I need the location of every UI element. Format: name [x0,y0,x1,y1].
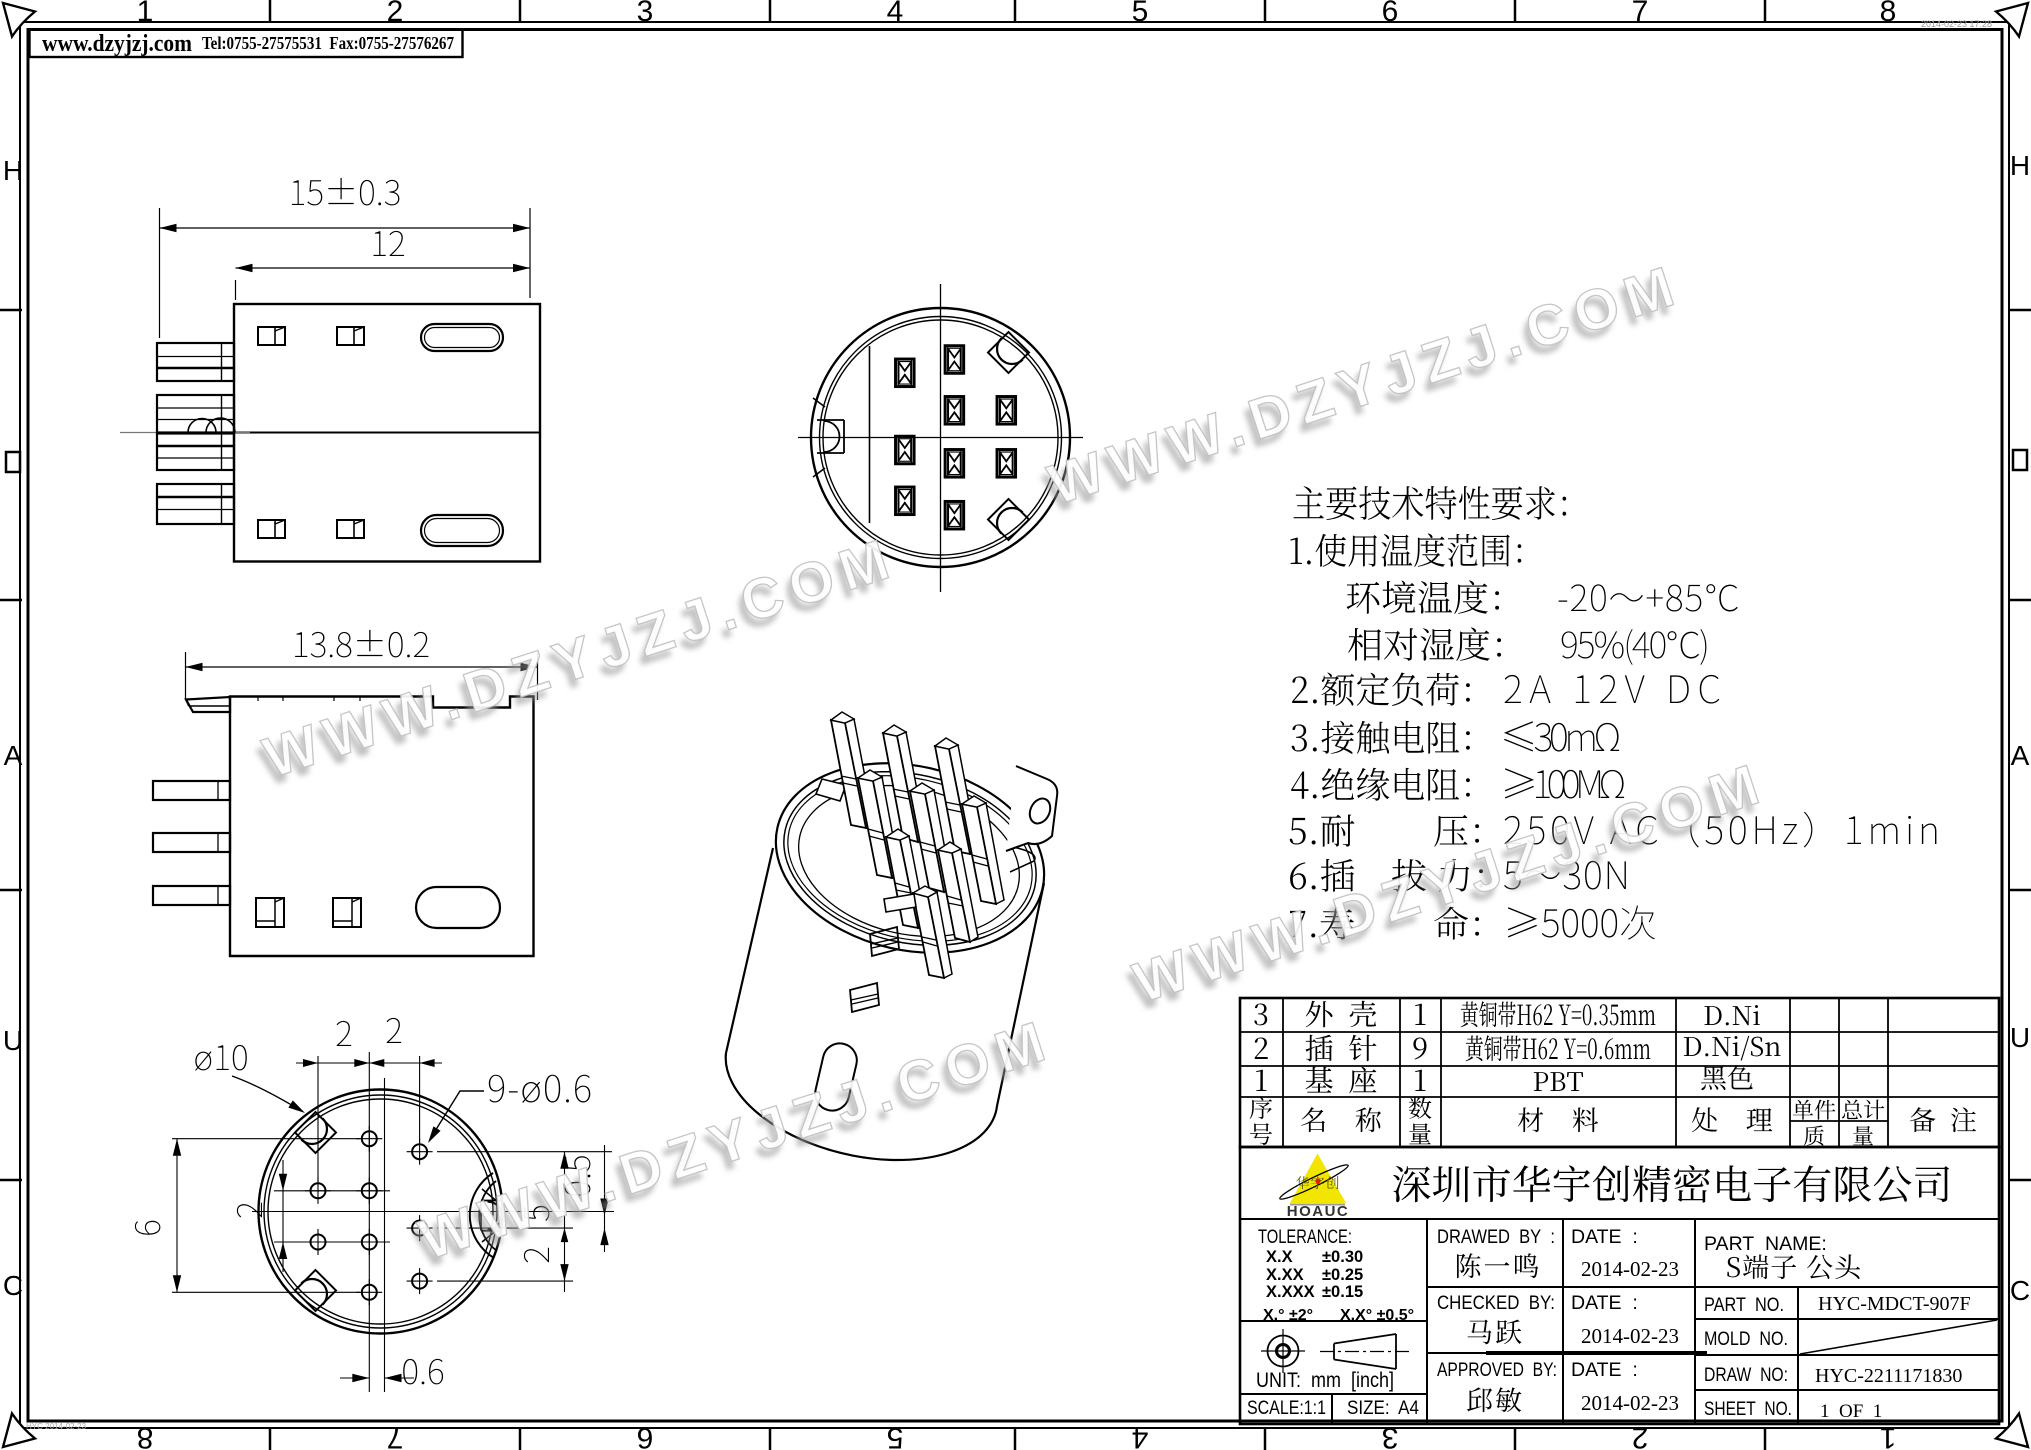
svg-text:APPROVED BY:: APPROVED BY: [1437,1359,1557,1381]
svg-text:HYC 2014-02-23: HYC 2014-02-23 [26,1422,87,1431]
svg-text:HOAUC: HOAUC [1287,1203,1350,1220]
svg-text:2: 2 [1632,1421,1649,1450]
svg-text:5: 5 [1132,0,1149,28]
svg-text:MOLD NO.: MOLD NO. [1704,1328,1788,1350]
svg-text:X.XXX: X.XXX [1266,1283,1315,1301]
svg-text:4: 4 [1132,1421,1149,1450]
svg-text:1: 1 [1880,1421,1897,1450]
svg-text:X.XX: X.XX [1266,1266,1304,1284]
svg-text:5: 5 [887,1421,904,1450]
svg-text:SCALE:1:1: SCALE:1:1 [1247,1398,1326,1419]
svg-text:6: 6 [637,1421,654,1450]
svg-text:8: 8 [137,1421,154,1450]
svg-text:TOLERANCE:: TOLERANCE: [1258,1227,1352,1248]
svg-text:H: H [2010,150,2030,181]
svg-text:U: U [2010,1022,2030,1053]
svg-text:3: 3 [1382,1421,1399,1450]
svg-text:±0.30: ±0.30 [1322,1248,1363,1266]
svg-text:U: U [3,1025,23,1056]
svg-text:Tel:0755-27575531 Fax:0755-27: Tel:0755-27575531 Fax:0755-27576267 [202,33,454,53]
svg-text:HYC-2211171830: HYC-2211171830 [1815,1365,1962,1387]
svg-text:www.dzyjzj.com: www.dzyjzj.com [42,31,192,57]
svg-text:2014-02-23 17:28: 2014-02-23 17:28 [1921,19,1992,29]
svg-text:4: 4 [887,0,904,28]
svg-text:7: 7 [1632,0,1649,28]
svg-text:2014-02-23: 2014-02-23 [1581,1324,1679,1348]
svg-text:8: 8 [1880,0,1897,28]
svg-text:7: 7 [387,1421,404,1450]
svg-text:1: 1 [137,0,154,28]
svg-text:DATE :: DATE : [1571,1359,1638,1381]
svg-text:A: A [2011,740,2030,771]
svg-text:6: 6 [1382,0,1399,28]
svg-text:1 OF 1: 1 OF 1 [1820,1401,1882,1422]
svg-text:X.X: X.X [1266,1248,1293,1266]
svg-text:SHEET NO.: SHEET NO. [1704,1398,1792,1420]
svg-text:2014-02-23: 2014-02-23 [1581,1257,1679,1281]
svg-text:UNIT: mm [inch]: UNIT: mm [inch] [1256,1369,1394,1392]
svg-text:2014-02-23: 2014-02-23 [1581,1391,1679,1415]
svg-text:X.° ±2°: X.° ±2° [1263,1307,1313,1324]
svg-text:C: C [2010,1275,2030,1306]
svg-text:H: H [3,155,23,186]
svg-text:DRAWED BY :: DRAWED BY : [1437,1226,1555,1248]
svg-text:PART NAME:: PART NAME: [1704,1233,1827,1255]
svg-text:HYC-MDCT-907F: HYC-MDCT-907F [1818,1293,1971,1315]
svg-text:SIZE: A4: SIZE: A4 [1347,1398,1419,1419]
svg-text:DATE :: DATE : [1571,1226,1638,1248]
svg-text:X.X° ±0.5°: X.X° ±0.5° [1340,1307,1414,1324]
svg-text:DATE :: DATE : [1571,1292,1638,1314]
svg-text:C: C [3,1270,23,1301]
svg-text:CHECKED BY:: CHECKED BY: [1437,1292,1555,1314]
svg-text:±0.25: ±0.25 [1322,1266,1363,1284]
svg-text:DRAW NO:: DRAW NO: [1704,1364,1788,1386]
svg-text:PART NO.: PART NO. [1704,1294,1784,1316]
svg-text:2: 2 [387,0,404,28]
svg-text:A: A [4,740,23,771]
svg-text:±0.15: ±0.15 [1322,1283,1363,1301]
svg-text:3: 3 [637,0,654,28]
